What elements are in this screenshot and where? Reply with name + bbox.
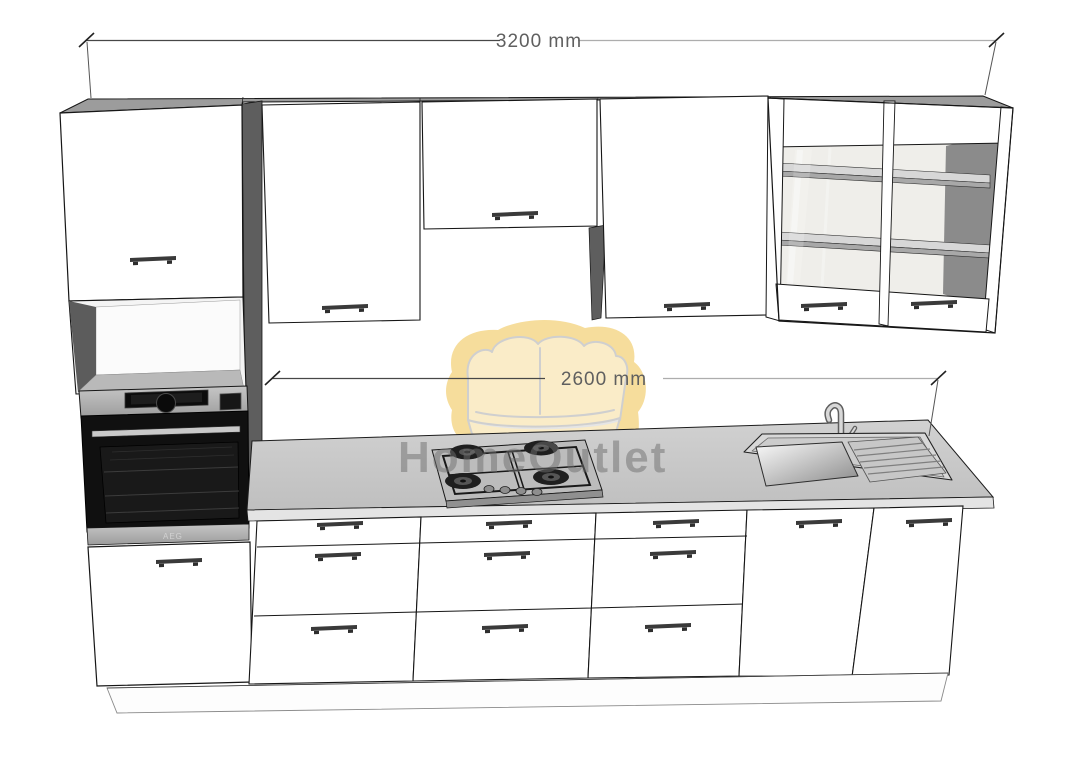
oven-button bbox=[220, 393, 241, 410]
glass-display-cabinet bbox=[766, 98, 1013, 333]
sink-base-door bbox=[739, 508, 874, 677]
tall-unit-open-niche bbox=[69, 297, 246, 394]
wall-cabinet-door bbox=[262, 102, 420, 323]
drawer-unit bbox=[413, 513, 596, 681]
wall-cabinet-door bbox=[600, 96, 768, 318]
drawer-unit bbox=[588, 510, 747, 678]
dimension-label-worktop-width: 2600 mm bbox=[561, 369, 647, 390]
dimension-extension-line bbox=[87, 42, 91, 98]
dimension-total-width: 3200 mm bbox=[79, 31, 1004, 98]
kitchen-3d-render: AEG bbox=[0, 0, 1065, 780]
base-units bbox=[249, 506, 963, 684]
watermark-brand-text: HomeOutlet bbox=[398, 433, 667, 482]
short-wall-cabinet-door bbox=[422, 99, 597, 229]
oven-knob bbox=[157, 394, 176, 413]
dimension-extension-line bbox=[985, 42, 996, 95]
drawer-unit bbox=[249, 517, 421, 684]
tall-unit-upper-door bbox=[60, 105, 243, 301]
kitchen-render-canvas: AEG bbox=[0, 0, 1065, 780]
oven-brand-logo: AEG bbox=[163, 532, 183, 541]
tall-unit: AEG bbox=[60, 105, 252, 686]
dimension-label-total-width: 3200 mm bbox=[496, 31, 582, 52]
sink bbox=[744, 405, 952, 486]
tall-unit-lower-door bbox=[88, 542, 252, 686]
built-in-oven: AEG bbox=[79, 386, 249, 545]
